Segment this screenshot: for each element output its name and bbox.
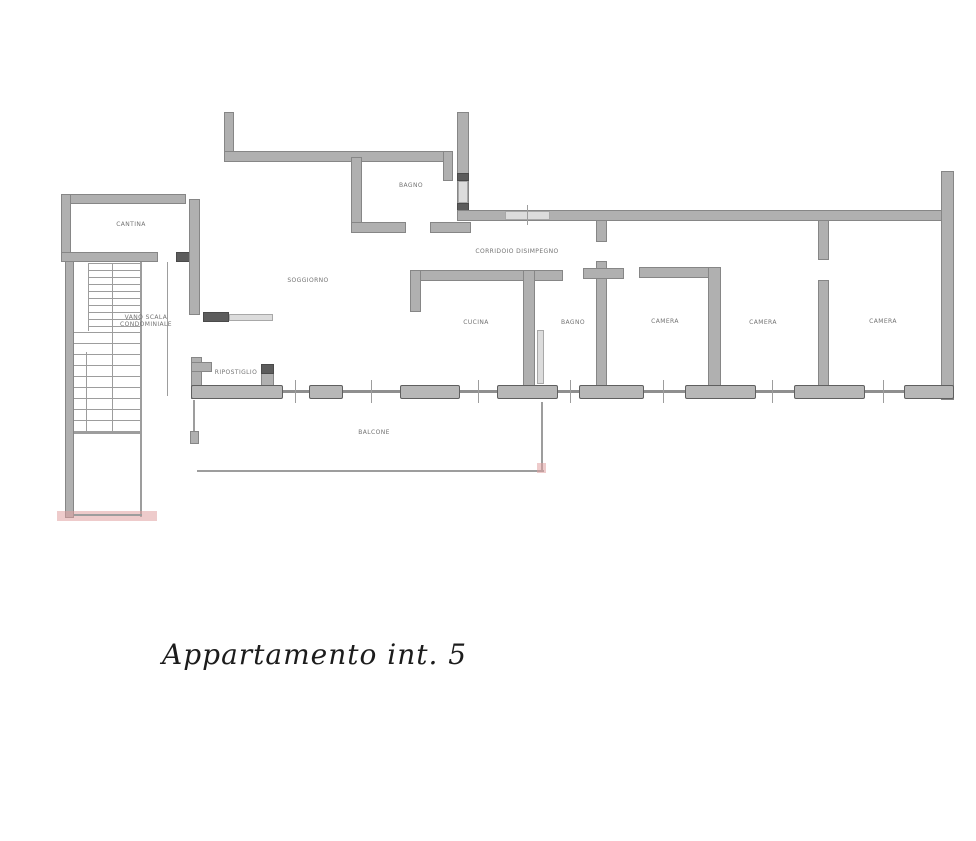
room-label-corridoio: CORRIDOIO DISIMPEGNO	[475, 248, 558, 255]
room-label-bagno: BAGNO	[561, 319, 585, 326]
plan-title: Appartamento int. 5	[162, 638, 467, 671]
window-tick-4	[570, 380, 571, 403]
wall-bagno-top-bottom	[351, 222, 406, 233]
wall-right-exterior	[941, 171, 954, 400]
wall-bagno-right-cross	[583, 268, 624, 279]
wall-camera1-right	[708, 267, 721, 390]
balcony-left-block	[190, 431, 199, 444]
room-label-stairwell: VANO SCALA CONDOMINIALE	[120, 314, 172, 328]
bagno-top-door-opening	[458, 181, 468, 203]
room-label-bagno-top: BAGNO	[399, 182, 423, 189]
wall-bottom-pier-2	[309, 385, 343, 399]
wall-cucina-bagno	[523, 270, 535, 391]
wall-camera2-right-stub	[818, 220, 829, 260]
wall-bottom-pier-8	[904, 385, 954, 399]
wall-bottom-pier-5	[579, 385, 644, 399]
entrance-door-jamb	[203, 312, 229, 322]
wall-bottom-pier-6	[685, 385, 756, 399]
wall-bagno-top-bottom-right	[430, 222, 471, 233]
room-label-camera1: CAMERA	[651, 318, 679, 325]
window-tick-1	[295, 380, 296, 403]
staircase-lower-treads	[74, 332, 141, 434]
wall-bottom-pier-7	[794, 385, 865, 399]
room-label-soggiorno: SOGGIORNO	[287, 277, 328, 284]
wall-stairwell-left	[65, 261, 74, 518]
wall-bottom-pier-1	[191, 385, 283, 399]
stairwell-bottom-line	[74, 514, 142, 516]
window-tick-7	[883, 380, 884, 403]
window-corridor-tick	[527, 205, 528, 225]
scan-artifact-bottom	[57, 511, 157, 521]
wall-soggiorno-left	[189, 199, 200, 315]
wall-cantina-bottom	[61, 252, 158, 262]
balcony-right-line	[541, 402, 543, 472]
wall-top-horizontal	[224, 151, 453, 162]
wall-bottom-pier-3	[400, 385, 460, 399]
wall-top-jog	[443, 151, 453, 181]
wall-cucina-top	[410, 270, 563, 281]
room-label-ripostiglio: RIPOSTIGLIO	[215, 369, 257, 376]
door-jamb-ripostiglio	[261, 364, 274, 374]
window-tick-5	[663, 380, 664, 403]
floor-plan: CANTINA VANO SCALA CONDOMINIALE SOGGIORN…	[0, 0, 976, 841]
wall-bottom-pier-4	[497, 385, 558, 399]
wall-ripostiglio-top	[191, 362, 212, 372]
room-label-cantina: CANTINA	[116, 221, 146, 228]
scan-artifact-balcony-corner	[537, 463, 546, 473]
balcony-bottom-line	[197, 470, 544, 472]
room-label-camera3: CAMERA	[869, 318, 897, 325]
room-label-balcone: BALCONE	[358, 429, 390, 436]
room-label-cucina: CUCINA	[463, 319, 489, 326]
wall-cantina-top	[61, 194, 186, 204]
stair-stringer-line-1	[86, 352, 87, 434]
stair-stringer-line-2	[112, 263, 113, 434]
landing-line	[167, 262, 168, 396]
window-tick-6	[772, 380, 773, 403]
door-leaf-bagno	[537, 330, 544, 384]
wall-cucina-left-stub	[410, 270, 421, 312]
window-tick-2	[371, 380, 372, 403]
room-label-camera2: CAMERA	[749, 319, 777, 326]
wall-camera2-right	[818, 280, 829, 390]
window-tick-3	[478, 380, 479, 403]
wall-bagno-right	[596, 261, 607, 391]
entrance-door-leaf	[229, 314, 273, 321]
wall-bagno-right-stub	[596, 220, 607, 242]
stair-landing-divider	[74, 432, 141, 434]
door-jamb-bagno-top-1	[457, 173, 469, 181]
